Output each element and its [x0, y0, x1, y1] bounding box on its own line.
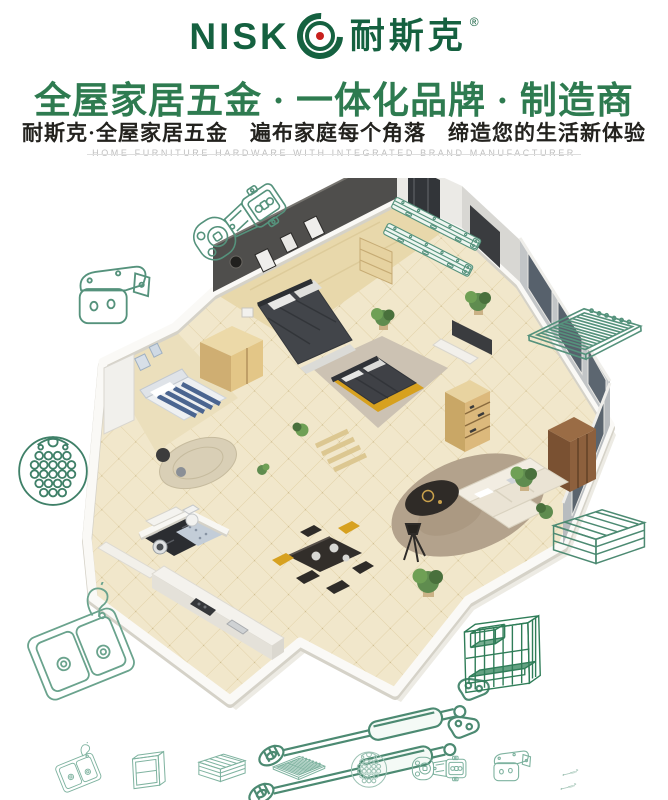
logo-latin-text: NISK: [189, 18, 289, 55]
kitchen-sink-icon: [49, 742, 105, 794]
gas-struts-illustration: [228, 642, 474, 752]
wire-shelf-icon: [271, 753, 327, 783]
drawer-slides-illustration: [396, 174, 552, 266]
corner-bracket-illustration: [74, 264, 158, 334]
sub-headline: 耐斯克·全屋家居五金 遍布家庭每个角落 缔造您的生活新体验: [0, 117, 668, 147]
perforated-plate-illustration: [14, 428, 92, 508]
logo-chinese-text: 耐斯克: [350, 19, 467, 54]
wire-basket-icon: [195, 751, 249, 785]
logo-bullseye-icon: [287, 4, 352, 69]
perforated-plate-icon: [349, 747, 389, 789]
english-tagline: HOME FURNITURE HARDWARE WITH INTEGRATED …: [0, 148, 668, 158]
bookshelf: [445, 380, 490, 452]
logo-red-dot: [316, 32, 324, 40]
logo-bullseye-inner-ring: [305, 21, 335, 51]
corner-bracket-icon: [491, 750, 535, 786]
wire-basket-illustration: [546, 504, 652, 570]
gas-struts-icon: [557, 748, 619, 788]
registered-mark: ®: [470, 15, 479, 29]
main-headline: 全屋家居五金 · 一体化品牌 · 制造商: [0, 70, 668, 124]
wire-shelf-illustration: [522, 298, 648, 370]
cabinet-hinge-icon: [411, 752, 469, 785]
wire-organizer-illustration: [452, 596, 548, 696]
kitchen-sink-illustration: [18, 582, 138, 704]
poster-page: NISK 耐斯克 ® 全屋家居五金 · 一体化品牌 · 制造商 耐斯克·全屋家居…: [0, 0, 668, 800]
hardware-icon-strip: [0, 740, 668, 796]
brand-logo: NISK 耐斯克 ®: [0, 13, 668, 59]
cabinet-frame-icon: [127, 745, 173, 791]
